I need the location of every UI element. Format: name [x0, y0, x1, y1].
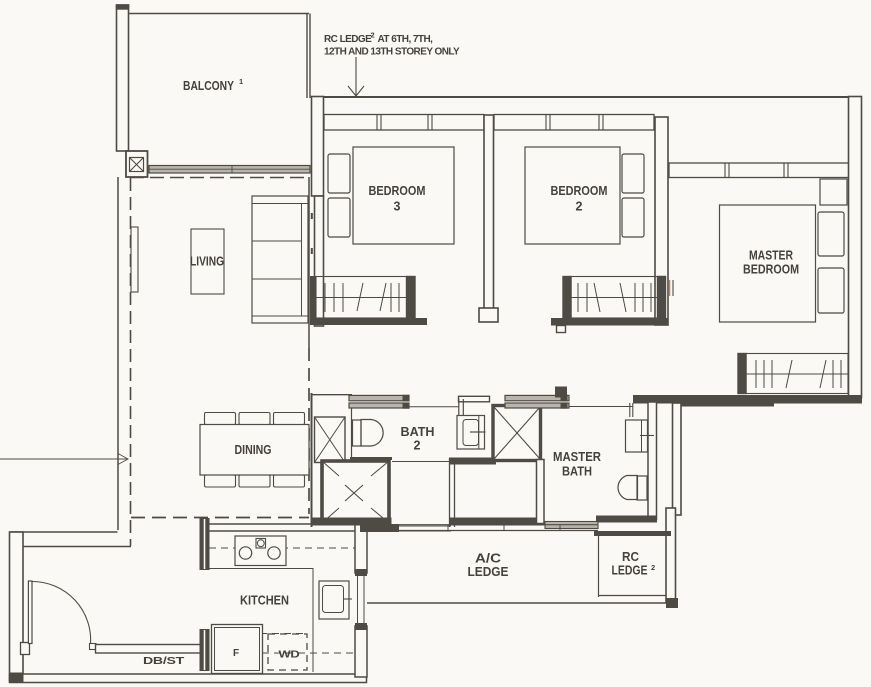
svg-text:KITCHEN: KITCHEN — [240, 594, 289, 608]
svg-text:F: F — [233, 648, 239, 659]
svg-text:LEDGE: LEDGE — [468, 565, 509, 579]
svg-text:BATH: BATH — [401, 425, 435, 439]
svg-text:BEDROOM: BEDROOM — [551, 184, 608, 198]
svg-text:MASTER: MASTER — [749, 249, 793, 263]
svg-text:LEDGE: LEDGE — [612, 564, 648, 578]
svg-text:BEDROOM: BEDROOM — [743, 263, 799, 277]
svg-text:2: 2 — [371, 31, 375, 40]
svg-text:BEDROOM: BEDROOM — [369, 184, 426, 198]
svg-text:BALCONY: BALCONY — [183, 79, 235, 93]
svg-text:MASTER: MASTER — [553, 450, 601, 464]
svg-text:DB/ST: DB/ST — [143, 655, 185, 667]
svg-text:DINING: DINING — [235, 443, 272, 457]
svg-text:WD: WD — [279, 649, 301, 661]
svg-text:12TH AND 13TH STOREY ONLY: 12TH AND 13TH STOREY ONLY — [324, 47, 460, 58]
svg-text:1: 1 — [239, 77, 243, 86]
svg-text:A/C: A/C — [475, 552, 501, 566]
svg-text:AT 6TH, 7TH,: AT 6TH, 7TH, — [378, 34, 434, 45]
svg-text:2: 2 — [576, 200, 583, 214]
svg-text:3: 3 — [394, 200, 401, 214]
svg-text:RC: RC — [622, 550, 639, 564]
svg-text:2: 2 — [414, 439, 421, 453]
svg-text:RC LEDGE: RC LEDGE — [324, 34, 372, 45]
svg-text:BATH: BATH — [562, 465, 592, 479]
svg-text:LIVING: LIVING — [190, 255, 224, 269]
svg-text:2: 2 — [651, 563, 655, 572]
